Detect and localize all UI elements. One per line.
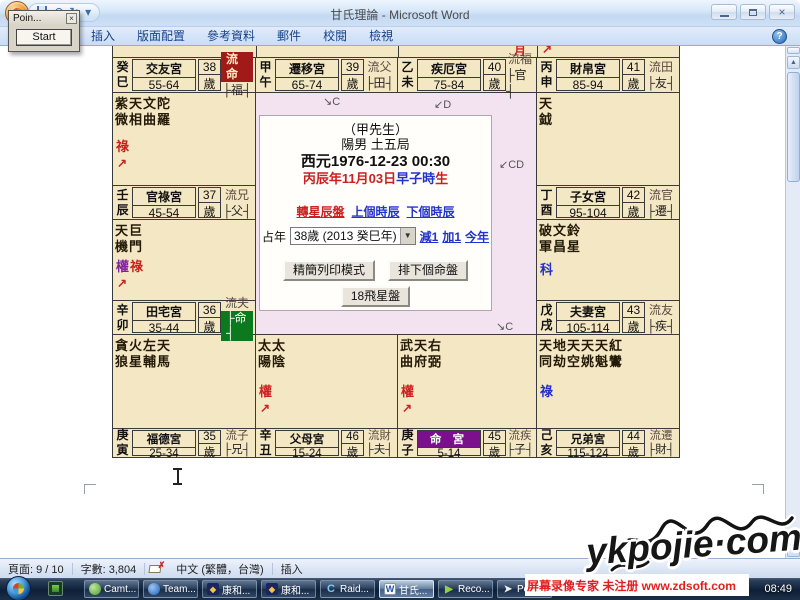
start-orb-button[interactable] <box>6 576 31 600</box>
flow-palace-label: 流田 <box>649 59 673 75</box>
ibeam-cursor <box>173 468 182 485</box>
flow-palace-label: 流夫 <box>225 295 249 311</box>
window-title: 甘氏理論 - Microsoft Word <box>0 6 800 23</box>
palace-header-xu: 戊戌 夫妻宮105-114 43歲 流友├疾┤ <box>536 300 680 335</box>
popup-title: Poin... <box>13 13 41 24</box>
palace-header-chen: 壬辰 官祿宮45-54 37歲 流兄├父┤ <box>112 185 255 220</box>
word-count[interactable]: 字數: 3,804 <box>73 561 145 577</box>
taskbar-item-kanghe-1[interactable]: ◆ 康和... <box>202 580 257 598</box>
self-hua-arrow: ↗ <box>117 157 253 169</box>
fly-mark: ↘C <box>496 320 513 333</box>
taskbar-clock[interactable]: 08:49 <box>764 583 792 595</box>
gender-element: 陽男 土五局 <box>341 137 410 152</box>
hua-mark: 權 <box>401 385 414 399</box>
palace-header-si: 癸巳 交友宮55-64 38歲 流命├福┤ <box>112 57 255 93</box>
proofing-status-icon[interactable]: ✗ <box>148 562 165 576</box>
split-handle[interactable] <box>787 47 800 54</box>
recorder-icon: ▶ <box>443 583 455 595</box>
lunar-birth-date: 丙辰年11月03日 <box>303 171 396 186</box>
link-previous-hour[interactable]: 上個時辰 <box>351 203 399 220</box>
year-select-value: 38歲 (2013 癸巳年) <box>291 228 400 244</box>
palace-body-yin: 貪火左天狼星輔馬 <box>112 335 255 428</box>
flow-palace-label: 流財 <box>368 429 391 443</box>
taskbar-item-raid[interactable]: C Raid... <box>320 580 375 598</box>
palace-body-zi: 武天右曲府弼 權 ↗ <box>397 335 536 428</box>
text-boundary-mark <box>752 484 764 494</box>
vertical-scrollbar[interactable]: ▲ ▼ <box>785 46 800 558</box>
word-document-icon: W <box>384 583 396 595</box>
start-button[interactable]: Start <box>16 29 72 46</box>
restore-icon <box>749 9 757 16</box>
document-area: 月 ↗ ↘C ↙D ↙CD ↘C （甲先生） 陽男 土五局 西元1976-12-… <box>0 46 800 558</box>
self-hua-arrow: ↗ <box>260 402 395 414</box>
camtasia-icon <box>89 583 101 595</box>
flow-palace-label: 流兄 <box>225 187 249 203</box>
simple-print-button[interactable]: 精簡列印模式 <box>283 260 375 281</box>
minimize-button[interactable] <box>711 4 737 20</box>
palace-header-hai: 己亥 兄弟宮115-124 44歲 流遷├財┤ <box>536 428 680 458</box>
screen: ↶ ↻ ▾ 甘氏理論 - Microsoft Word × 插入 版面配置 參考… <box>0 0 800 600</box>
palace-body-chou: 太太陽陰 權 ↗ <box>255 335 397 428</box>
birth-hour: 早子時 <box>396 171 435 186</box>
link-next-hour[interactable]: 下個時辰 <box>407 203 455 220</box>
palace-header-yin: 庚寅 福德宮25-34 35歲 流子├兄┤ <box>112 428 255 458</box>
taskbar-item-teamviewer[interactable]: Team... <box>143 580 198 598</box>
year-select[interactable]: 38歲 (2013 癸巳年) ▼ <box>290 227 416 245</box>
chevron-down-icon[interactable]: ▼ <box>400 228 415 244</box>
window-controls: × <box>711 4 795 20</box>
palace-body-you: 天鉞 <box>536 93 680 185</box>
person-name: （甲先生） <box>343 122 408 137</box>
ribbon-tab-strip: 插入 版面配置 參考資料 郵件 校閱 檢視 ? <box>0 27 800 46</box>
kanghe-icon: ◆ <box>266 583 278 595</box>
palace-header-shen: 丙申 財帛宮85-94 41歲 流田├友┤ <box>536 57 680 93</box>
restore-button[interactable] <box>740 4 766 20</box>
self-hua-arrow: ↗ <box>117 277 253 289</box>
tab-mailings[interactable]: 郵件 <box>266 26 312 46</box>
link-plus-one[interactable]: 加1 <box>442 228 461 245</box>
flow-palace-label: 流友 <box>649 302 673 318</box>
link-minus-one[interactable]: 減1 <box>420 228 439 245</box>
flow-life-tag: ├命┤ <box>221 311 253 341</box>
palace-body-mao: 天巨機門 權 祿 ↗ <box>112 220 255 300</box>
language-indicator[interactable]: 中文 (繁體，台灣) <box>168 561 271 577</box>
next-chart-button[interactable]: 排下個命盤 <box>388 260 468 281</box>
self-hua-arrow: ↗ <box>402 402 534 414</box>
hua-mark: 祿 <box>540 385 553 399</box>
tab-references[interactable]: 參考資料 <box>196 26 266 46</box>
tab-view[interactable]: 檢視 <box>358 26 404 46</box>
hua-mark: 科 <box>540 263 553 277</box>
hua-mark: 祿 <box>116 140 129 154</box>
flying-star-chart-button[interactable]: 18飛星盤 <box>341 286 410 307</box>
palace-header-wu: 甲午 遷移宮65-74 39歲 流父├田┤ <box>255 57 397 93</box>
fly-mark: ↙D <box>434 98 451 111</box>
fly-mark: ↘C <box>323 95 340 108</box>
flow-palace-label: 流遷 <box>650 429 673 443</box>
chart-top-cut-strip: 月 ↗ <box>112 46 680 57</box>
raid-icon: C <box>325 583 337 595</box>
life-palace-label: 命 宮 <box>418 431 480 448</box>
taskbar-item-camtasia[interactable]: Camt... <box>84 580 139 598</box>
overflow-mark-arrow: ↗ <box>542 46 552 56</box>
minimize-icon <box>720 15 729 17</box>
insert-mode-indicator[interactable]: 插入 <box>273 561 311 577</box>
flow-palace-label: 流子 <box>226 429 249 443</box>
tab-review[interactable]: 校閱 <box>312 26 358 46</box>
palace-header-you: 丁酉 子女宮95-104 42歲 流官├遷┤ <box>536 185 680 220</box>
taskbar-item-kanghe-2[interactable]: ◆ 康和... <box>261 580 316 598</box>
palace-body-chen: 紫天文陀微相曲羅 祿 ↗ <box>112 93 255 185</box>
text-boundary-mark <box>84 484 96 494</box>
teamviewer-icon <box>148 583 160 595</box>
gregorian-birth-datetime: 西元1976-12-23 00:30 <box>301 153 450 170</box>
flow-palace-label: 流父 <box>367 59 391 75</box>
palace-body-xu: 破文鈴軍昌星 科 <box>536 220 680 300</box>
tab-insert[interactable]: 插入 <box>80 26 126 46</box>
flow-palace-label: 流福 <box>508 51 532 67</box>
fly-mark: ↙CD <box>499 158 524 171</box>
popup-close-button[interactable]: × <box>66 13 77 24</box>
flow-palace-label: 流官 <box>649 187 673 203</box>
pointer-icon: ➤ <box>502 583 514 595</box>
palace-header-zi: 庚子 命 宮5-14 45歲 流疾├子┤ <box>397 428 536 458</box>
page-indicator[interactable]: 頁面: 9 / 10 <box>0 561 72 577</box>
flow-palace-label: 流命 <box>221 52 253 82</box>
quick-launch-icon[interactable] <box>48 581 63 596</box>
kanghe-icon: ◆ <box>207 583 219 595</box>
hua-mark: 權 <box>259 385 272 399</box>
scroll-up-icon[interactable]: ▲ <box>787 56 800 69</box>
link-rotate-chart[interactable]: 轉星辰盤 <box>296 203 344 220</box>
palace-header-chou: 辛丑 父母宮15-24 46歲 流財├夫┤ <box>255 428 397 458</box>
hua-mark: 權 <box>116 260 129 274</box>
tab-page-layout[interactable]: 版面配置 <box>126 26 196 46</box>
taskbar-item-word-document[interactable]: W 甘氏... <box>379 580 434 598</box>
help-button[interactable]: ? <box>772 29 787 44</box>
year-select-label: 占年 <box>262 228 286 245</box>
chart-center-area: ↘C ↙D ↙CD ↘C （甲先生） 陽男 土五局 西元1976-12-23 0… <box>255 93 536 335</box>
chart-info-dialog: （甲先生） 陽男 土五局 西元1976-12-23 00:30 丙辰年11月03… <box>259 115 492 311</box>
link-current-year[interactable]: 今年 <box>465 228 489 245</box>
pointer-popup: Poin... × Start <box>8 10 80 52</box>
palace-header-mao: 辛卯 田宅宮35-44 36歲 流夫├命┤ <box>112 300 255 335</box>
flow-palace-label: 流疾 <box>509 429 532 443</box>
palace-header-wei: 乙未 疾厄宮75-84 40歲 流福├官┤ <box>397 57 536 93</box>
scrollbar-thumb[interactable] <box>787 72 800 182</box>
birth-suffix: 生 <box>435 171 448 186</box>
taskbar-item-recorder[interactable]: ▶ Reco... <box>438 580 493 598</box>
title-bar: ↶ ↻ ▾ 甘氏理論 - Microsoft Word × <box>0 0 800 27</box>
close-button[interactable]: × <box>769 4 795 20</box>
palace-body-hai: 天地天天天紅同劫空姚魁鸞 祿 <box>536 335 680 428</box>
windows-flag-icon <box>13 583 24 594</box>
hua-mark: 祿 <box>130 260 143 274</box>
